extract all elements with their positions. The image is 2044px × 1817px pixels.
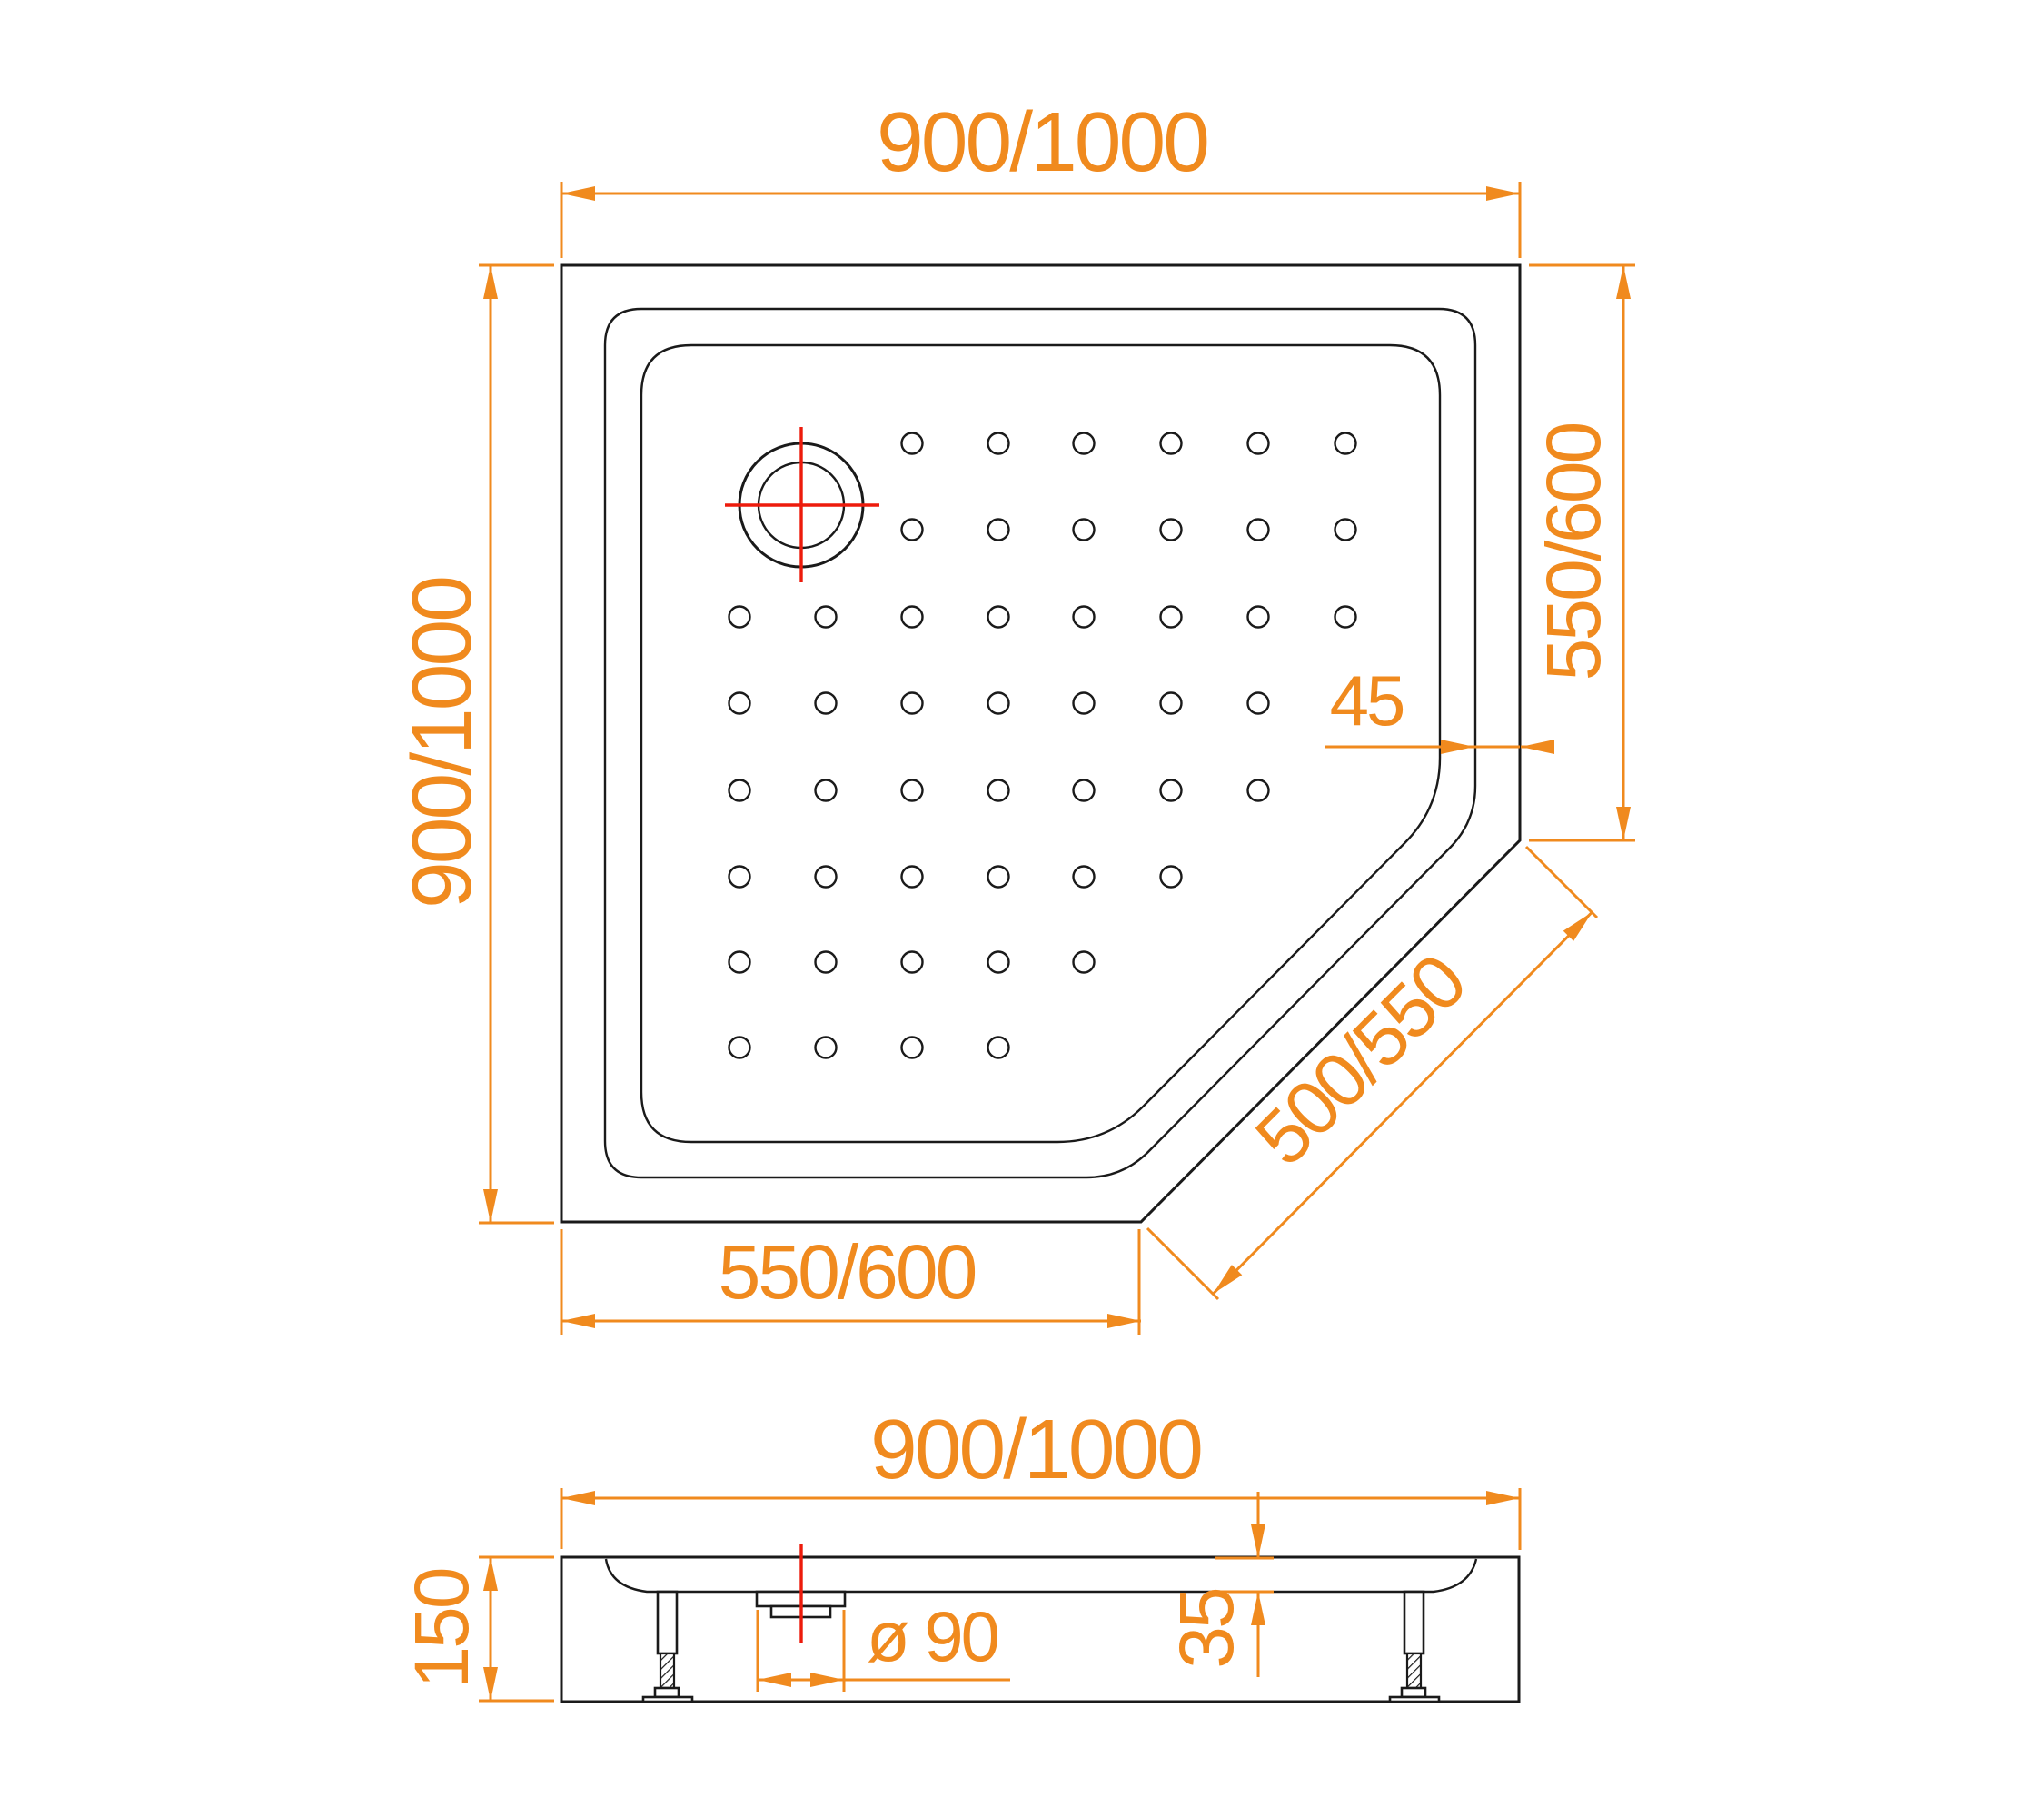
leg-right-body [1404,1592,1424,1653]
anti-slip-dot [729,867,750,888]
anti-slip-dot [1074,433,1095,454]
anti-slip-dot [902,780,923,801]
anti-slip-dot [1074,952,1095,973]
anti-slip-dot [902,693,923,714]
plan-view: 900/1000 900/1000 550/600 550/600 [394,94,1635,1335]
anti-slip-dot [988,780,1009,801]
anti-slip-dot [1335,607,1356,628]
dimension-label-rim-offset: 45 [1330,660,1404,740]
anti-slip-dot [988,520,1009,541]
anti-slip-dot [729,693,750,714]
drain [725,427,879,582]
section-view: 900/1000 150 ø 90 35 [399,1402,1520,1702]
anti-slip-dot [1074,520,1095,541]
anti-slip-dot [902,1038,923,1058]
leg-left-thread [660,1653,674,1688]
dimension-label-top-width: 900/1000 [877,94,1207,189]
anti-slip-dot [1161,780,1182,801]
dimension-right-edge: 550/600 [1529,265,1635,840]
anti-slip-dot [902,433,923,454]
drawing-canvas: 900/1000 900/1000 550/600 550/600 [0,0,2044,1817]
leg-right-base [1390,1697,1439,1702]
anti-slip-dot [816,693,837,714]
anti-slip-dot [902,520,923,541]
dimension-diagonal-edge: 500/550 [1147,847,1597,1299]
anti-slip-dot [816,607,837,628]
section-outline [561,1557,1519,1702]
leg-left [643,1592,692,1702]
anti-slip-dot [988,867,1009,888]
dimension-top-width: 900/1000 [561,94,1520,258]
anti-slip-dot [1248,607,1269,628]
anti-slip-dot [1161,520,1182,541]
extension-line [1526,847,1597,918]
leg-right-thread [1407,1653,1421,1688]
anti-slip-dot [988,952,1009,973]
dimension-label-drain-diameter: ø 90 [867,1596,998,1676]
anti-slip-dot [1161,607,1182,628]
anti-slip-dot [988,693,1009,714]
dimension-bottom-edge: 550/600 [561,1229,1141,1335]
dimension-section-width: 900/1000 [561,1402,1520,1550]
anti-slip-dot [1074,693,1095,714]
leg-right-foot [1402,1688,1425,1697]
anti-slip-dot [729,780,750,801]
anti-slip-dot [1161,433,1182,454]
anti-slip-dot [1248,433,1269,454]
dimension-rim-depth: 35 [1164,1492,1274,1677]
anti-slip-dot [1161,693,1182,714]
anti-slip-dot [1335,433,1356,454]
shower-tray-technical-drawing: 900/1000 900/1000 550/600 550/600 [0,0,2044,1817]
anti-slip-dot [902,607,923,628]
dimension-label-section-width: 900/1000 [870,1402,1201,1496]
anti-slip-dots [729,433,1356,1058]
anti-slip-dot [988,1038,1009,1058]
anti-slip-dot [729,952,750,973]
anti-slip-dot [816,780,837,801]
anti-slip-dot [1335,520,1356,541]
section-basin-floor [606,1559,1476,1592]
dimension-rim-offset-45: 45 [1325,660,1553,747]
dimension-label-rim-depth: 35 [1164,1589,1249,1669]
dimension-label-right-edge: 550/600 [1531,423,1616,680]
anti-slip-dot [1248,520,1269,541]
anti-slip-dot [729,607,750,628]
dimension-left-height: 900/1000 [394,265,554,1223]
anti-slip-dot [1248,780,1269,801]
anti-slip-dot [1248,693,1269,714]
leg-right [1390,1592,1439,1702]
dimension-label-bottom-edge: 550/600 [719,1229,976,1315]
anti-slip-dot [902,867,923,888]
anti-slip-dot [816,867,837,888]
anti-slip-dot [988,433,1009,454]
dimension-label-section-height: 150 [399,1569,484,1688]
leg-left-base [643,1697,692,1702]
extension-line [1147,1228,1218,1299]
leg-left-body [658,1592,677,1653]
anti-slip-dot [1074,867,1095,888]
drain-trap [757,1544,845,1643]
anti-slip-dot [816,1038,837,1058]
dimension-label-left-height: 900/1000 [394,578,489,908]
tray-basin-floor-edge [641,345,1440,1142]
leg-left-foot [655,1688,679,1697]
anti-slip-dot [816,952,837,973]
anti-slip-dot [1161,867,1182,888]
anti-slip-dot [1074,607,1095,628]
dimension-section-height: 150 [399,1557,554,1701]
anti-slip-dot [729,1038,750,1058]
anti-slip-dot [902,952,923,973]
anti-slip-dot [1074,780,1095,801]
anti-slip-dot [988,607,1009,628]
